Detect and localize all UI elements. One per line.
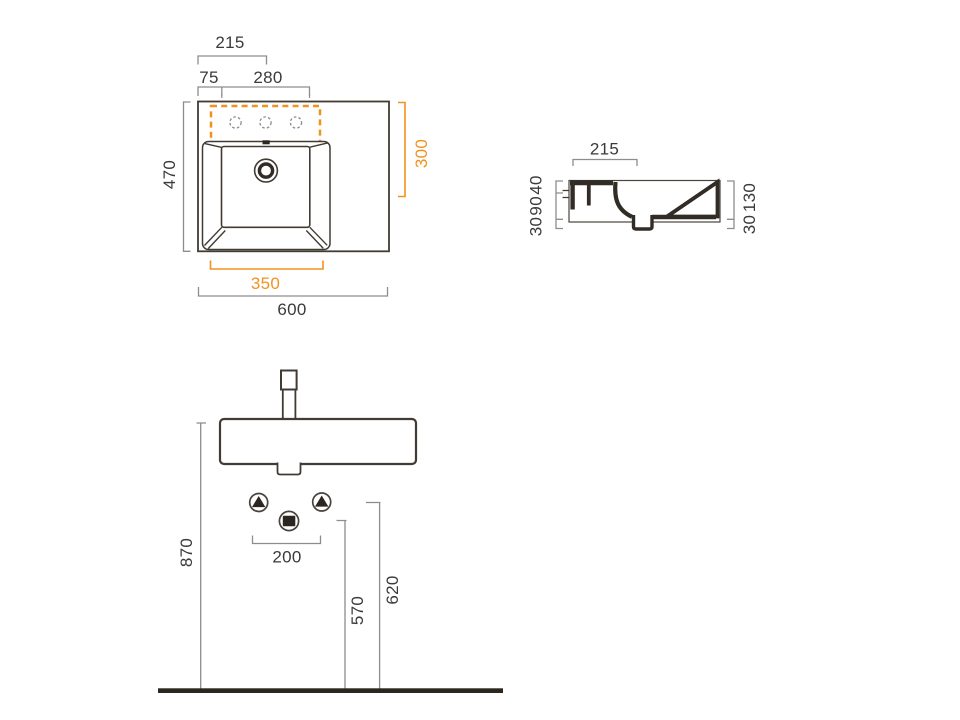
section-left-bracket — [556, 181, 563, 229]
faucet-body — [283, 390, 296, 420]
faucet-head — [281, 371, 297, 390]
front-dim-570-line — [337, 521, 347, 690]
section-dim-90-label: 90 — [527, 196, 546, 216]
plan-dim-600-bracket — [199, 287, 388, 296]
washbasin-technical-drawing: 215 75 280 470 300 350 — [0, 0, 960, 720]
floor-line — [158, 688, 503, 693]
front-view: 200 870 570 620 — [158, 371, 503, 694]
front-dim-570-label: 570 — [348, 596, 367, 625]
section-dim-30-left-label: 30 — [527, 217, 546, 237]
front-dim-200-label: 200 — [272, 548, 301, 567]
plan-dim-215-label: 215 — [215, 33, 244, 52]
section-dim-215-label: 215 — [590, 140, 619, 159]
plan-dim-300-label: 300 — [412, 139, 431, 168]
section-view: 215 40 90 30 130 30 — [527, 140, 760, 237]
front-dim-870-label: 870 — [177, 538, 196, 567]
plan-dim-75-label: 75 — [199, 68, 219, 87]
drain-square — [283, 516, 296, 527]
section-dim-30-right-label: 30 — [740, 215, 759, 235]
section-dim-215-bracket — [573, 160, 637, 167]
plan-view: 215 75 280 470 300 350 — [160, 33, 431, 319]
plan-drain-inner-ring — [259, 164, 272, 177]
front-dim-200-bracket — [253, 536, 321, 544]
plan-overflow-slot — [263, 140, 270, 144]
plan-dim-215-bracket — [198, 56, 267, 65]
supply-connection-right-icon — [313, 493, 331, 511]
plan-dim-300-bracket — [398, 103, 405, 197]
front-drain-outlet — [278, 463, 301, 475]
front-dim-620-label: 620 — [383, 575, 402, 604]
section-dim-40-label: 40 — [527, 175, 546, 195]
plan-dim-75-280-bracket — [198, 87, 310, 96]
front-sink-body — [220, 419, 416, 464]
plan-dim-350-label: 350 — [251, 274, 280, 293]
drawing-canvas: 215 75 280 470 300 350 — [0, 0, 960, 720]
plan-dim-280-label: 280 — [253, 68, 282, 87]
supply-connection-left-icon — [250, 494, 268, 512]
plan-dim-600-label: 600 — [277, 300, 306, 319]
plan-dim-470-label: 470 — [160, 160, 179, 189]
plan-dim-470-bracket — [184, 102, 191, 251]
section-dim-130-label: 130 — [740, 183, 759, 212]
section-drain-box — [634, 215, 653, 229]
plan-dim-350-bracket — [211, 261, 324, 270]
section-right-bracket — [727, 181, 734, 229]
front-dim-620-line — [366, 503, 381, 690]
front-dim-870-line — [197, 423, 207, 689]
drain-connection-icon — [279, 511, 298, 530]
